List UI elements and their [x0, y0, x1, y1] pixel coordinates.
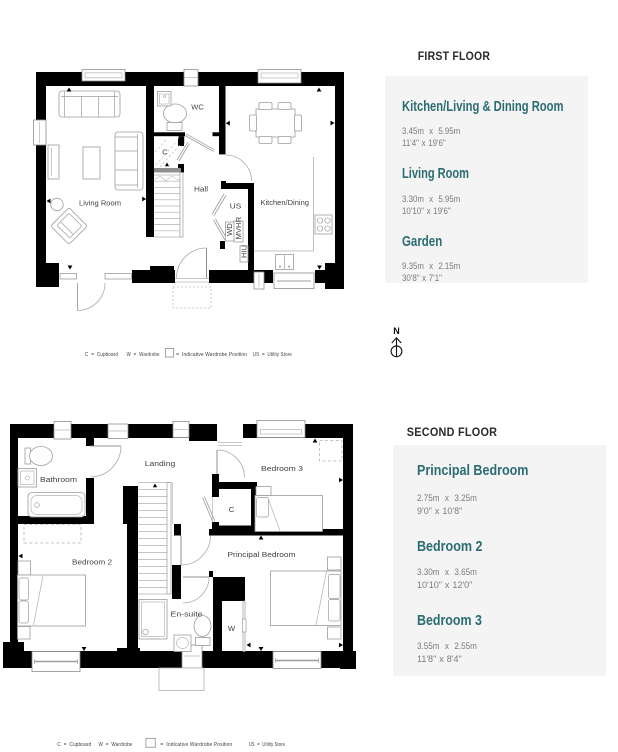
svg-text:W = Wardrobe: W = Wardrobe — [99, 742, 133, 748]
svg-text:C: C — [229, 505, 235, 514]
svg-text:Living Room: Living Room — [79, 199, 121, 208]
svg-text:W: W — [228, 624, 236, 633]
svg-text:Principal Bedroom: Principal Bedroom — [228, 550, 296, 559]
svg-text:WC: WC — [191, 103, 204, 112]
svg-text:Bathroom: Bathroom — [40, 475, 77, 484]
svg-text:Landing: Landing — [145, 459, 176, 468]
svg-text:= Indicative Wardrobe Positio: = Indicative Wardrobe Position — [176, 352, 247, 358]
svg-text:MVHR: MVHR — [234, 216, 243, 239]
svg-text:HIU: HIU — [239, 245, 248, 258]
svg-text:C: C — [162, 148, 168, 157]
svg-text:US = Utility Store: US = Utility Store — [253, 352, 292, 358]
svg-text:= Indicative Wardrobe Positio: = Indicative Wardrobe Position — [160, 742, 232, 748]
svg-text:US = Utility Store: US = Utility Store — [249, 742, 285, 748]
svg-text:Bedroom 3: Bedroom 3 — [261, 464, 303, 473]
svg-text:US: US — [230, 201, 242, 210]
svg-text:En-suite: En-suite — [171, 610, 203, 619]
svg-text:Bedroom 2: Bedroom 2 — [72, 558, 112, 567]
svg-text:N: N — [393, 326, 400, 336]
svg-text:WD: WD — [225, 223, 234, 236]
svg-text:C = Cupboard: C = Cupboard — [85, 352, 118, 358]
svg-text:Hall: Hall — [194, 185, 208, 194]
svg-text:C = Cupboard: C = Cupboard — [57, 742, 91, 748]
svg-text:W = Wardrobe: W = Wardrobe — [127, 352, 160, 358]
svg-text:Kitchen/Dining: Kitchen/Dining — [260, 198, 309, 207]
